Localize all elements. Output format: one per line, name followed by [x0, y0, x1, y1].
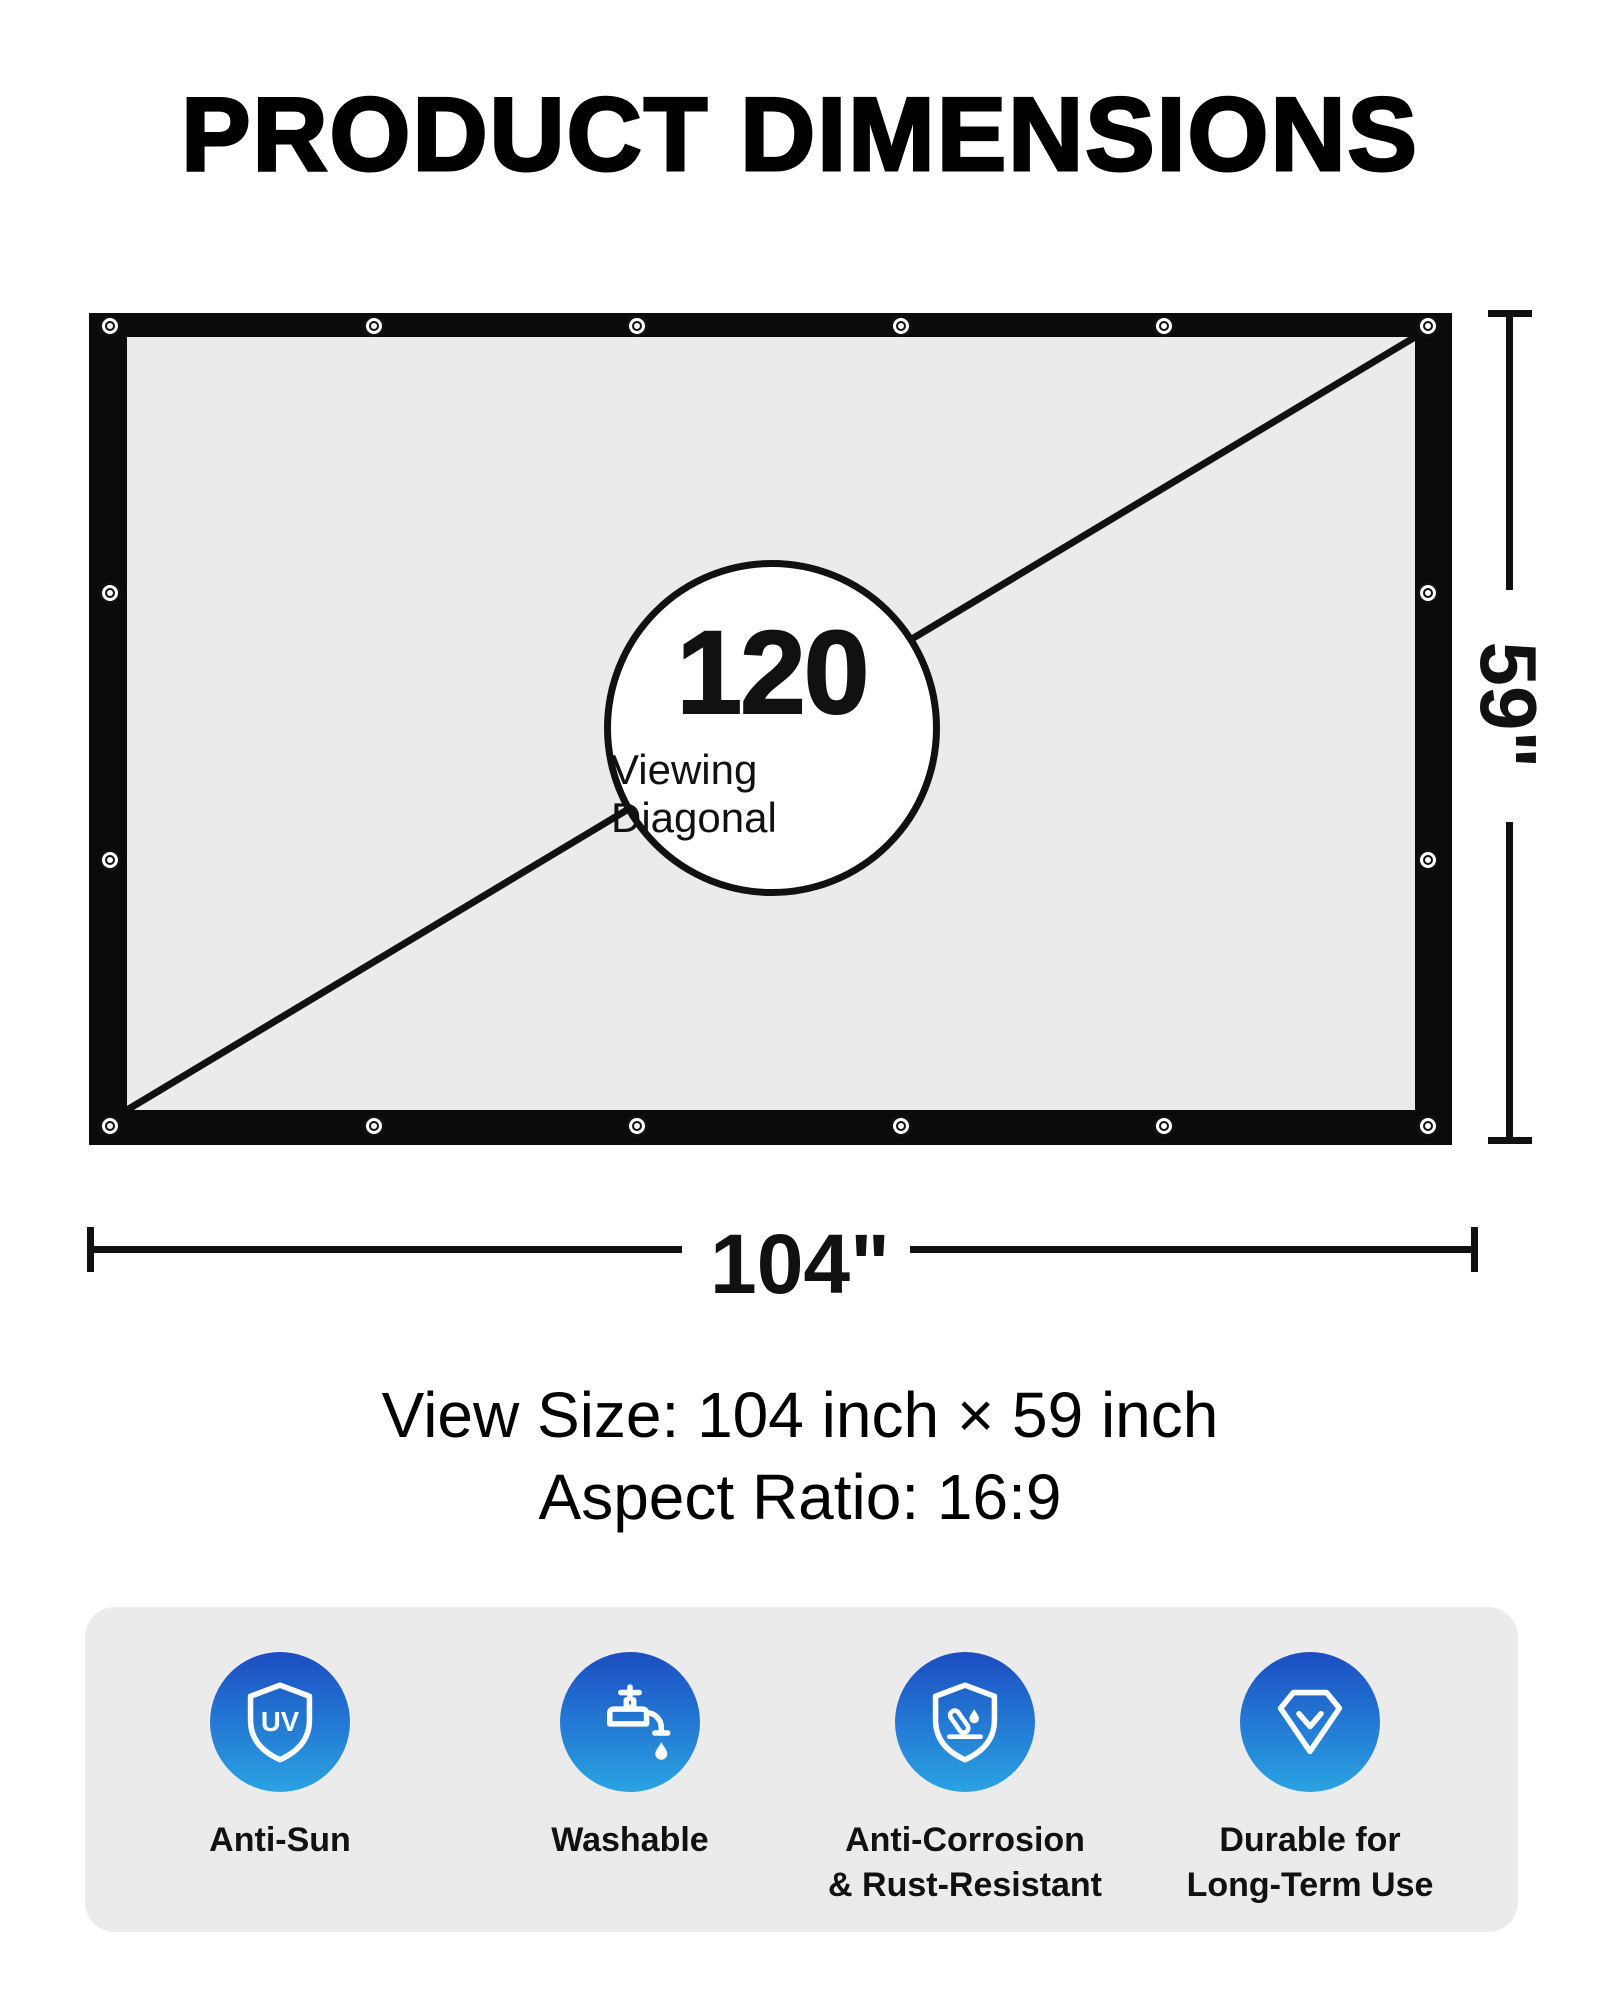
feature-label: Durable for Long-Term Use — [1187, 1818, 1434, 1908]
grommet — [1417, 582, 1439, 604]
diamond-check-icon — [1264, 1676, 1356, 1768]
feature-anti-sun: UV Anti-Sun — [115, 1652, 445, 1863]
view-size-text: View Size: 104 inch × 59 inch — [0, 1378, 1600, 1452]
grommet — [626, 1115, 648, 1137]
grommet — [99, 849, 121, 871]
grommet — [626, 315, 648, 337]
height-dim-label: 59" — [1463, 595, 1553, 815]
feature-label: Anti-Sun — [209, 1818, 351, 1863]
aspect-ratio-text: Aspect Ratio: 16:9 — [0, 1460, 1600, 1534]
grommet — [890, 1115, 912, 1137]
feature-label: Washable — [551, 1818, 708, 1863]
grommet — [99, 1115, 121, 1137]
uv-shield-icon: UV — [234, 1676, 326, 1768]
features-card: UV Anti-Sun Washable — [85, 1607, 1518, 1932]
grommet — [1417, 1115, 1439, 1137]
page-title: PRODUCT DIMENSIONS — [0, 76, 1600, 195]
grommet — [1417, 315, 1439, 337]
width-dim-label: 104" — [620, 1216, 980, 1313]
grommet — [99, 315, 121, 337]
feature-icon-badge — [1240, 1652, 1380, 1792]
corrosion-shield-icon — [919, 1676, 1011, 1768]
feature-anti-corrosion: Anti-Corrosion & Rust-Resistant — [800, 1652, 1130, 1908]
grommet — [363, 315, 385, 337]
height-dim-cap-bottom — [1488, 1137, 1532, 1144]
width-dim-cap-right — [1471, 1227, 1478, 1272]
feature-durable: Durable for Long-Term Use — [1145, 1652, 1475, 1908]
grommet — [1153, 315, 1175, 337]
width-dim-line-right — [910, 1246, 1475, 1253]
diagonal-value: 120 — [677, 614, 868, 732]
feature-label: Anti-Corrosion & Rust-Resistant — [828, 1818, 1102, 1908]
grommet — [363, 1115, 385, 1137]
svg-text:UV: UV — [261, 1706, 300, 1737]
width-dim-line-left — [92, 1246, 682, 1253]
grommet — [890, 315, 912, 337]
grommet — [99, 582, 121, 604]
height-dim-line-upper — [1506, 310, 1513, 590]
feature-icon-badge — [560, 1652, 700, 1792]
grommet — [1153, 1115, 1175, 1137]
viewing-diagonal-badge: 120 Viewing Diagonal — [604, 560, 940, 896]
faucet-icon — [584, 1676, 676, 1768]
diagonal-label: Viewing Diagonal — [611, 746, 933, 842]
feature-icon-badge: UV — [210, 1652, 350, 1792]
height-dim-line-lower — [1506, 822, 1513, 1140]
feature-icon-badge — [895, 1652, 1035, 1792]
grommet — [1417, 849, 1439, 871]
screen-diagram: 120 Viewing Diagonal — [89, 313, 1452, 1145]
feature-washable: Washable — [465, 1652, 795, 1863]
